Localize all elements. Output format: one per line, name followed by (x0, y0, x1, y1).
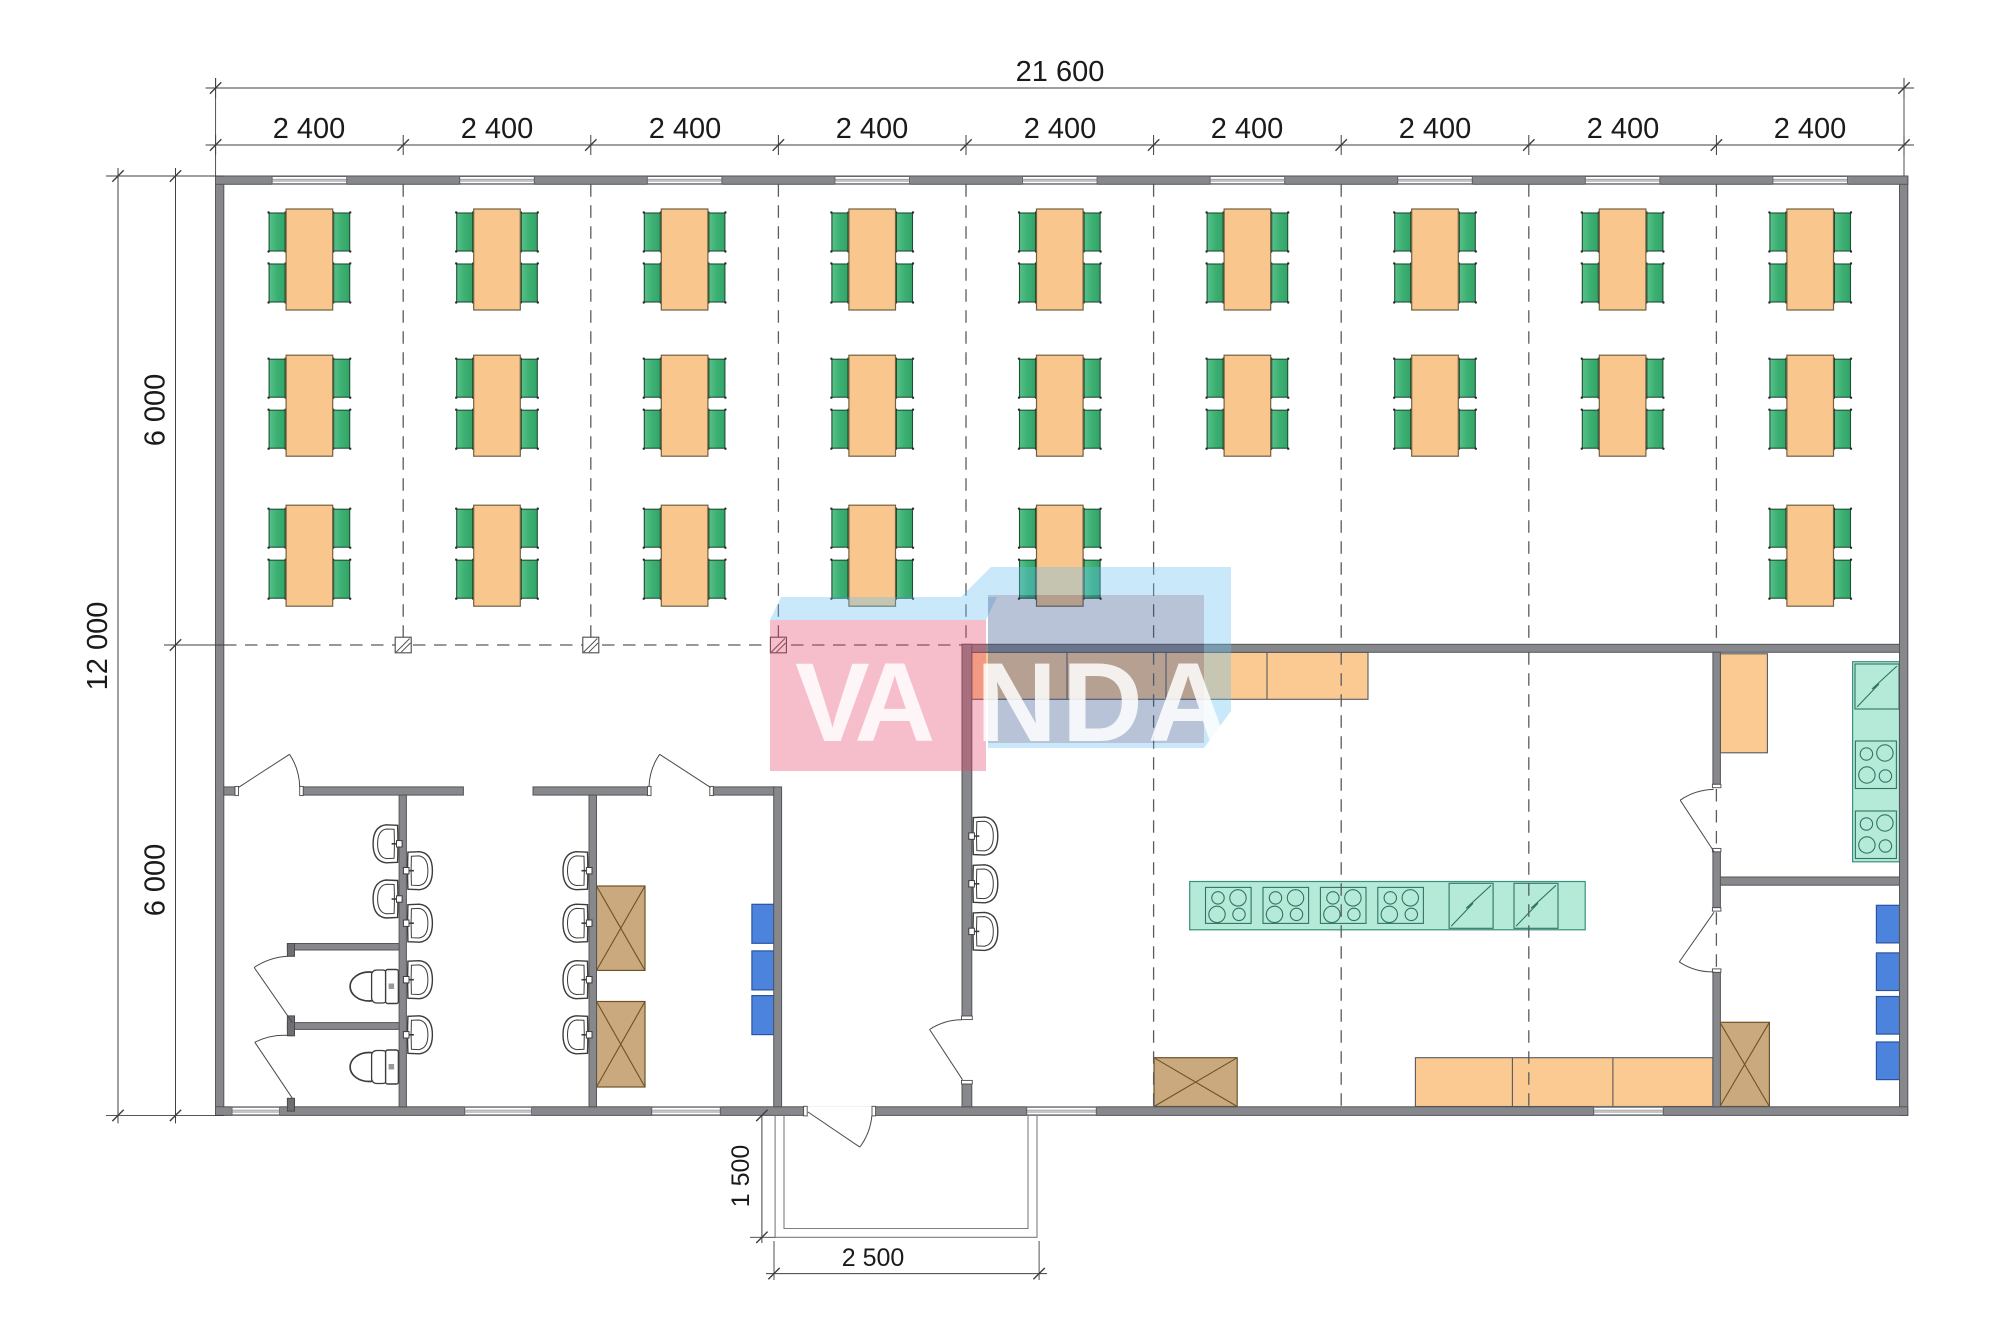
svg-text:2 400: 2 400 (461, 113, 534, 145)
svg-text:VA: VA (795, 640, 932, 765)
svg-text:NDA: NDA (976, 640, 1234, 765)
svg-text:2 400: 2 400 (649, 113, 722, 145)
svg-text:2 400: 2 400 (836, 113, 909, 145)
svg-text:2 400: 2 400 (1399, 113, 1472, 145)
svg-text:21 600: 21 600 (1016, 56, 1105, 88)
svg-text:12 000: 12 000 (82, 602, 114, 691)
svg-text:6 000: 6 000 (140, 374, 172, 447)
svg-text:2 400: 2 400 (1024, 113, 1097, 145)
svg-text:2 400: 2 400 (1211, 113, 1284, 145)
svg-text:2 400: 2 400 (1774, 113, 1847, 145)
svg-text:6 000: 6 000 (140, 844, 172, 917)
svg-text:1 500: 1 500 (727, 1145, 755, 1208)
svg-text:2 500: 2 500 (842, 1244, 905, 1272)
svg-text:2 400: 2 400 (1587, 113, 1660, 145)
svg-text:2 400: 2 400 (273, 113, 346, 145)
